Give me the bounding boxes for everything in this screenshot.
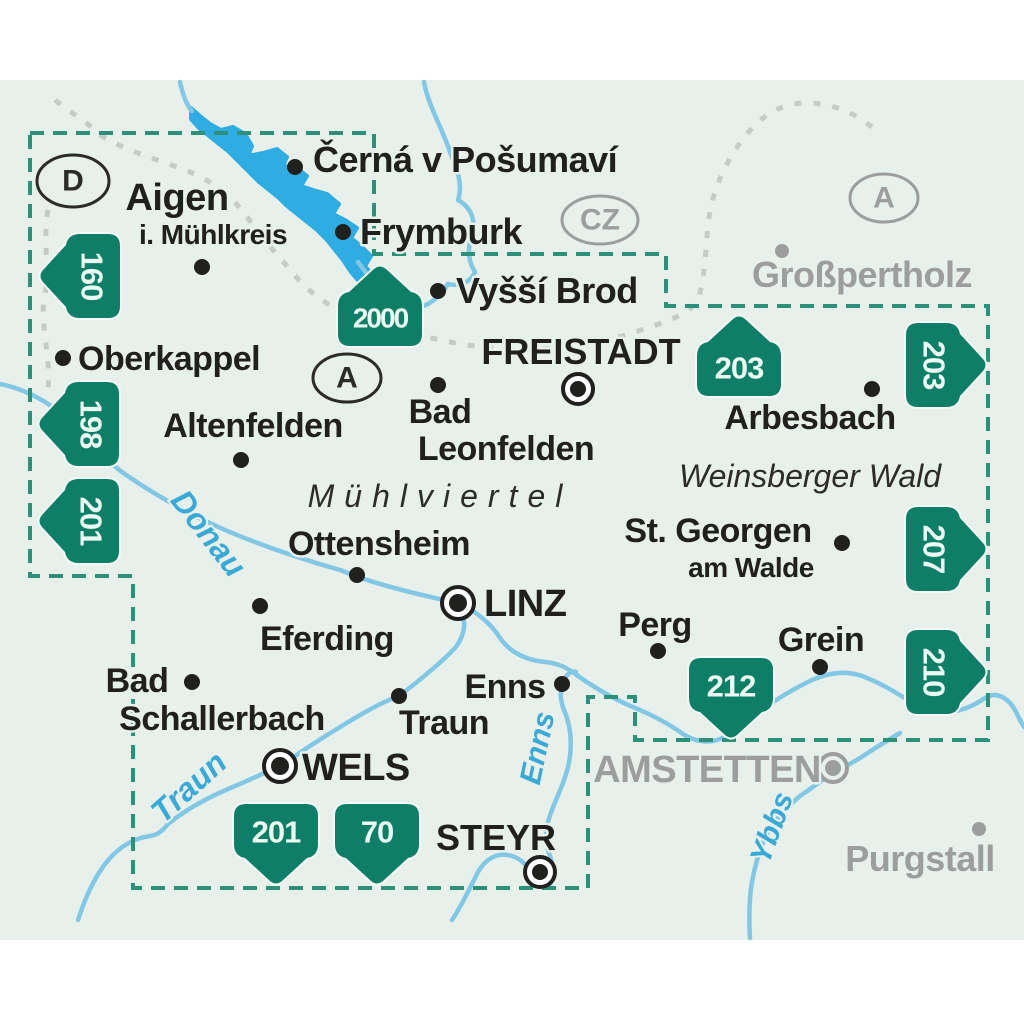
label-oberkappel: Oberkappel (78, 340, 260, 378)
grein-dot (812, 659, 828, 675)
label-cerna: Černá v Pošumaví (313, 138, 619, 180)
ottensheim-dot (349, 567, 365, 583)
label-steyr: STEYR (436, 817, 556, 858)
svg-text:198: 198 (74, 400, 109, 449)
label-amstetten: AMSTETTEN (593, 749, 821, 791)
label-st-georgen-2: am Walde (688, 552, 814, 583)
label-grein: Grein (778, 621, 864, 659)
label-bad-schallerbach-2: Schallerbach (119, 700, 325, 738)
label-vyssi-brod: Vyšší Brod (456, 270, 638, 311)
traun-city-dot (391, 688, 407, 704)
svg-text:201: 201 (74, 497, 109, 546)
altenfelden-dot (233, 452, 249, 468)
cerna-dot (287, 159, 303, 175)
aigen-dot (194, 259, 210, 275)
label-bad-leonfelden-1: Bad (409, 393, 472, 431)
map-canvas: D A CZ A Černá v Pošumaví Aigen i. Mühlk… (0, 0, 1024, 1024)
bad-leonfelden-dot (430, 377, 446, 393)
amstetten-symbol (819, 754, 847, 782)
label-aigen-sub: i. Mühlkreis (139, 219, 287, 250)
enns-city-dot (554, 676, 570, 692)
label-freistadt: FREISTADT (481, 331, 680, 372)
label-frymburk: Frymburk (360, 211, 524, 252)
svg-text:2000: 2000 (353, 303, 409, 334)
label-st-georgen-1: St. Georgen (624, 512, 811, 550)
label-traun-city: Traun (399, 704, 489, 742)
label-bad-schallerbach-1: Bad (106, 662, 169, 700)
country-letter-a-inner: A (336, 362, 358, 395)
label-purgstall: Purgstall (845, 838, 995, 879)
label-region-weinsberger-wald: Weinsberger Wald (679, 458, 942, 494)
label-linz: LINZ (484, 583, 567, 625)
purgstall-dot (972, 822, 986, 836)
label-aigen: Aigen (125, 177, 228, 219)
label-bad-leonfelden-2: Leonfelden (418, 430, 594, 468)
svg-text:210: 210 (917, 648, 952, 697)
country-letter-d: D (62, 165, 84, 198)
eferding-dot (252, 598, 268, 614)
oberkappel-dot (55, 350, 71, 366)
svg-text:203: 203 (917, 341, 952, 390)
country-letter-a-outer: A (873, 182, 895, 215)
vyssi-brod-dot (430, 283, 446, 299)
label-enns-city: Enns (464, 668, 545, 706)
svg-text:160: 160 (75, 252, 110, 301)
steyr-symbol (525, 857, 555, 887)
linz-symbol (442, 587, 474, 619)
label-arbesbach: Arbesbach (724, 399, 895, 437)
wels-symbol (264, 750, 296, 782)
label-ottensheim: Ottensheim (288, 525, 470, 563)
svg-text:70: 70 (361, 815, 393, 850)
svg-text:201: 201 (252, 815, 301, 850)
country-letter-cz: CZ (580, 204, 620, 237)
perg-dot (650, 643, 666, 659)
label-eferding: Eferding (260, 620, 394, 658)
svg-text:203: 203 (715, 351, 764, 386)
arbesbach-dot (864, 381, 880, 397)
svg-text:207: 207 (917, 525, 952, 574)
freistadt-symbol (563, 374, 593, 404)
label-wels: WELS (302, 747, 410, 789)
frymburk-dot (335, 224, 351, 240)
svg-text:212: 212 (707, 669, 756, 704)
label-region-muehlviertel: Mühlviertel (308, 478, 573, 514)
bad-schallerbach-dot (184, 674, 200, 690)
st-georgen-dot (834, 535, 850, 551)
label-altenfelden: Altenfelden (163, 407, 343, 445)
label-grosspertholz: Großpertholz (752, 254, 972, 295)
label-perg: Perg (618, 606, 692, 644)
map-overview: D A CZ A Černá v Pošumaví Aigen i. Mühlk… (0, 0, 1024, 1024)
